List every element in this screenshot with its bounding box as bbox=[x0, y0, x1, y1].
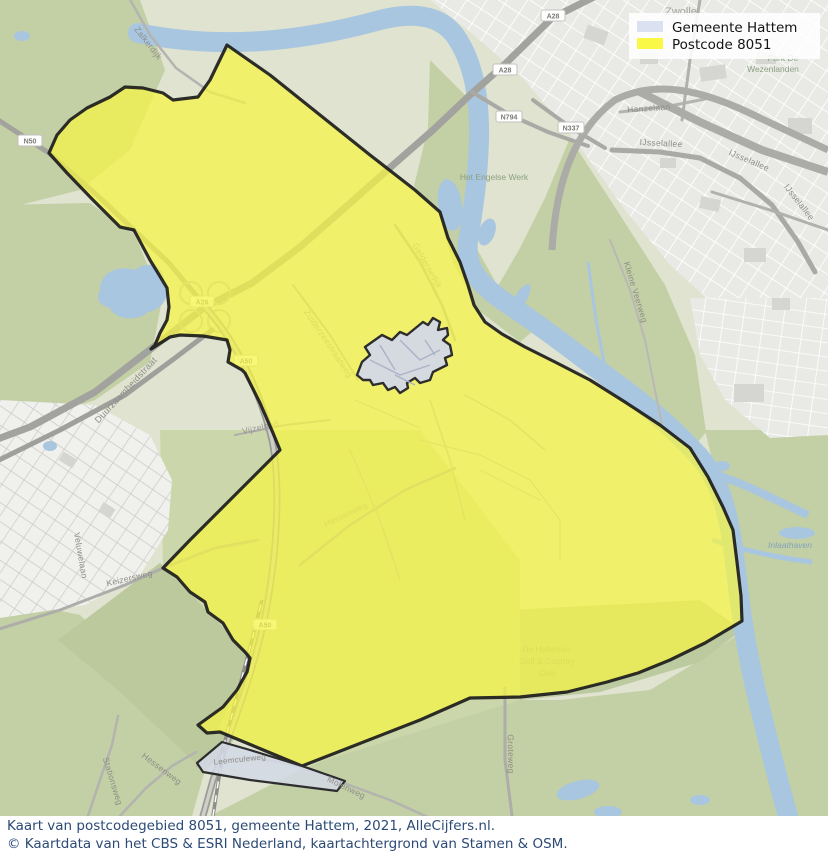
caption: Kaart van postcodegebied 8051, gemeente … bbox=[0, 816, 828, 861]
caption-line-1: Kaart van postcodegebied 8051, gemeente … bbox=[7, 816, 828, 836]
legend-swatch-postcode bbox=[637, 38, 663, 49]
area-label-engelse-werk: Het Engelse Werk bbox=[460, 172, 529, 182]
shield-label: N794 bbox=[501, 115, 518, 122]
shield-label: A28 bbox=[499, 68, 512, 75]
shield-label: N50 bbox=[24, 139, 37, 146]
legend-label-postcode: Postcode 8051 bbox=[672, 37, 771, 53]
water-label-inlaathaven: Inlaathaven bbox=[768, 540, 812, 550]
street-label-groteweg: Groteweg bbox=[506, 734, 517, 773]
shield-label: N337 bbox=[563, 126, 580, 133]
caption-line-2: © Kaartdata van het CBS & ESRI Nederland… bbox=[7, 836, 828, 854]
map-canvas: A28 A50 A50 Hessenweg Geldersedijk Vijze… bbox=[0, 0, 828, 816]
map-svg: A28 A50 A50 Hessenweg Geldersedijk Vijze… bbox=[0, 0, 828, 816]
legend-swatch-gemeente bbox=[637, 21, 663, 32]
page: A28 A50 A50 Hessenweg Geldersedijk Vijze… bbox=[0, 0, 828, 861]
road-shield-a28-mid: A28 bbox=[493, 64, 517, 75]
road-shield-a28-top: A28 bbox=[541, 10, 565, 21]
legend-label-gemeente: Gemeente Hattem bbox=[672, 20, 797, 36]
area-label-park-2: Wezenlanden bbox=[747, 64, 799, 74]
shield-label: A28 bbox=[547, 14, 560, 21]
road-shield-n50: N50 bbox=[18, 135, 42, 146]
legend: Gemeente Hattem Postcode 8051 bbox=[629, 13, 820, 59]
road-shield-n794: N794 bbox=[496, 111, 522, 122]
road-shield-n337: N337 bbox=[558, 122, 584, 133]
